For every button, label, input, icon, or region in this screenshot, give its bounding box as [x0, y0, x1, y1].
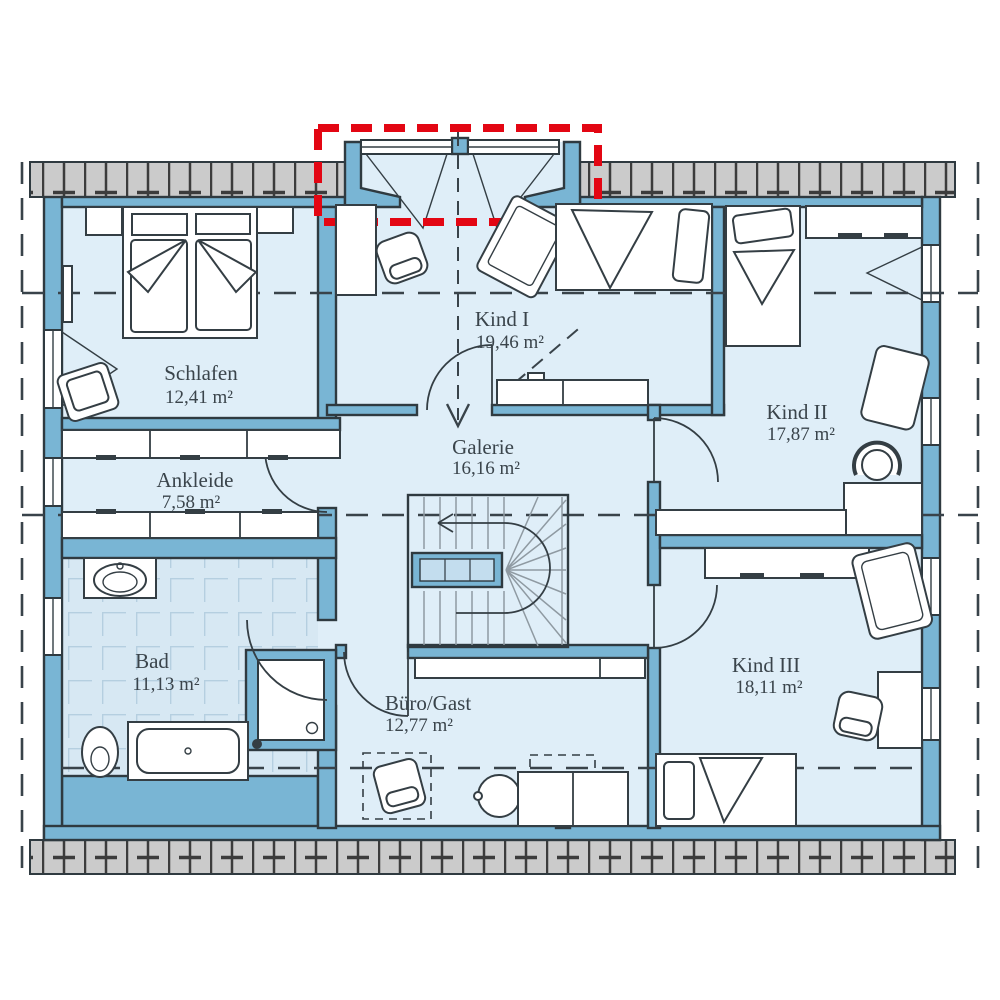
- room-label-schlafen: Schlafen: [164, 361, 238, 385]
- room-area-kind3: 18,11 m²: [735, 677, 803, 698]
- toilet: [82, 727, 118, 777]
- room-area-kind2: 17,87 m²: [767, 424, 835, 445]
- wardrobe-row: [62, 430, 340, 460]
- room-label-kind2: Kind II: [766, 400, 827, 424]
- bathtub: [128, 722, 248, 780]
- wardrobe: [705, 548, 869, 578]
- window: [922, 398, 940, 445]
- room-label-kind1: Kind I: [475, 307, 529, 331]
- window: [44, 458, 62, 506]
- double-bed: [123, 207, 257, 338]
- room-label-galerie: Galerie: [452, 435, 514, 459]
- floor-plan: Schlafen 12,41 m² Ankleide 7,58 m² Bad 1…: [0, 0, 1000, 1000]
- office-chair: [854, 443, 900, 480]
- roof-hatch-bottom: [30, 840, 955, 874]
- room-label-bad: Bad: [135, 649, 169, 673]
- room-label-buero: Büro/Gast: [385, 691, 471, 715]
- dormer-mullion: [452, 138, 468, 154]
- sideboard: [656, 510, 846, 535]
- desk: [336, 205, 376, 295]
- room-area-kind1: 19,46 m²: [476, 332, 544, 353]
- window-sill: [63, 266, 72, 322]
- room-label-ankleide: Ankleide: [157, 468, 234, 492]
- sideboard: [415, 658, 645, 678]
- desk: [878, 672, 922, 748]
- single-bed: [726, 206, 800, 346]
- nightstand: [257, 207, 293, 233]
- floor-plan-page: Schlafen 12,41 m² Ankleide 7,58 m² Bad 1…: [0, 0, 1000, 1000]
- single-bed: [656, 754, 796, 826]
- wardrobe: [806, 206, 922, 238]
- desk: [844, 483, 922, 535]
- room-area-ankleide: 7,58 m²: [162, 492, 221, 513]
- room-area-galerie: 16,16 m²: [452, 458, 520, 479]
- guest-bed: [518, 772, 628, 826]
- single-bed: [556, 204, 712, 290]
- wardrobe-row: [62, 509, 318, 538]
- room-area-schlafen: 12,41 m²: [165, 387, 233, 408]
- room-area-buero: 12,77 m²: [385, 715, 453, 736]
- desk-chair: [832, 690, 884, 742]
- nightstand: [86, 207, 122, 235]
- washbasin: [84, 558, 156, 598]
- window: [44, 598, 62, 655]
- room-area-bad: 11,13 m²: [132, 674, 200, 695]
- room-label-kind3: Kind III: [732, 653, 800, 677]
- bath-knee-wall: [62, 776, 318, 828]
